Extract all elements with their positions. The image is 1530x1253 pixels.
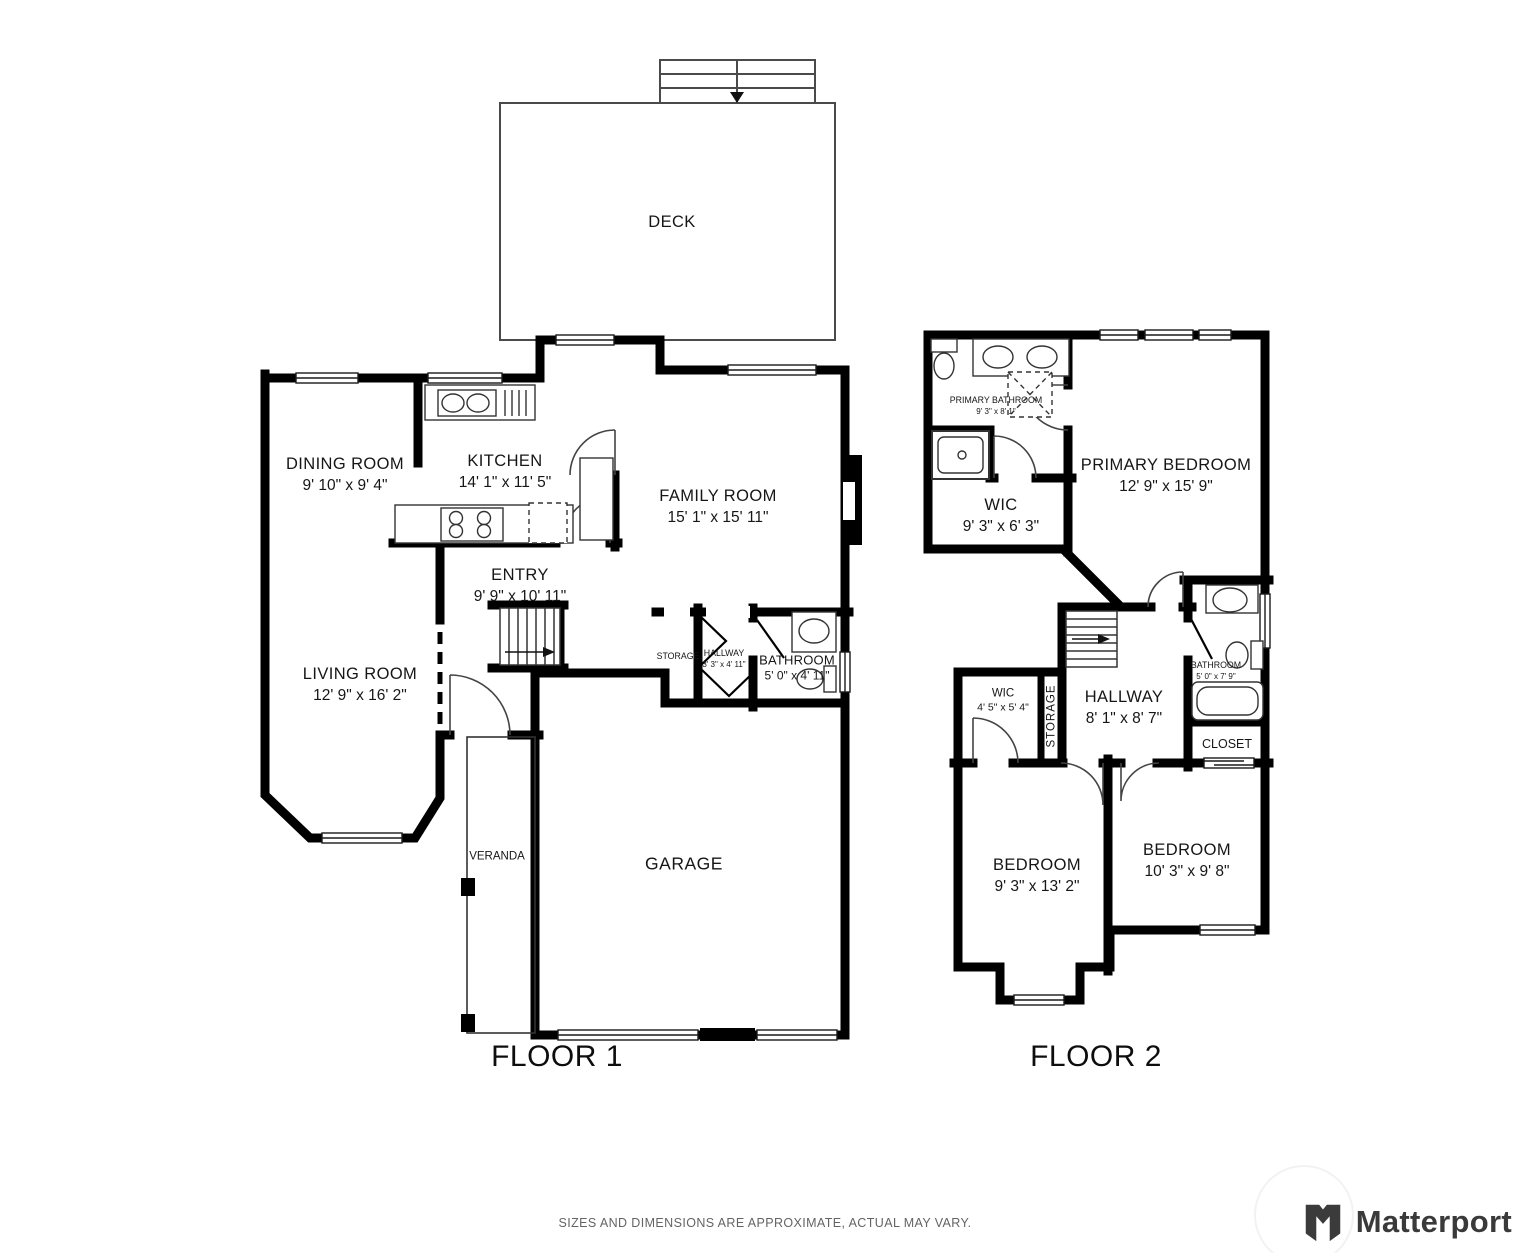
floor2-title: FLOOR 2	[1030, 1040, 1162, 1074]
room-label-living: LIVING ROOM 12' 9" x 16' 2"	[303, 664, 417, 706]
room-label-wic-large: WIC 9' 3" x 6' 3"	[963, 495, 1039, 537]
room-label-hallway-f1: HALLWAY 3' 3" x 4' 11"	[702, 648, 745, 670]
dining-dims: 9' 10" x 9' 4"	[286, 476, 404, 496]
matterport-logo: Matterport	[1300, 1199, 1512, 1245]
family-room-fireplace	[843, 455, 862, 545]
floor2-bathroom-door-leaf	[1190, 617, 1212, 659]
bathroom-f2-dims: 5' 0" x 7' 9"	[1191, 672, 1241, 683]
room-label-bedroom-right: BEDROOM 10' 3" x 9' 8"	[1143, 840, 1231, 882]
storage-f2-name: STORAGE	[1044, 684, 1059, 747]
floor2-bathroom-fixtures	[1192, 585, 1263, 720]
hallway-f2-dims: 8' 1" x 8' 7"	[1085, 709, 1164, 729]
floorplan-drawing	[0, 0, 1530, 1253]
wic-small-name: WIC	[977, 686, 1029, 701]
entry-dims: 9' 9" x 10' 11"	[474, 587, 566, 607]
bedroom-left-dims: 9' 3" x 13' 2"	[993, 877, 1081, 897]
room-label-bathroom-f2: BATHROOM 5' 0" x 7' 9"	[1191, 660, 1241, 682]
room-label-veranda: VERANDA	[469, 849, 525, 864]
wic-small-dims: 4' 5" x 5' 4"	[977, 702, 1029, 716]
room-label-bedroom-left: BEDROOM 9' 3" x 13' 2"	[993, 855, 1081, 897]
hallway-f1-name: HALLWAY	[702, 648, 745, 660]
room-label-primary-bedroom: PRIMARY BEDROOM 12' 9" x 15' 9"	[1081, 455, 1251, 497]
garage-door-post	[700, 1028, 755, 1041]
room-label-entry: ENTRY 9' 9" x 10' 11"	[474, 565, 566, 607]
primary-bedroom-dims: 12' 9" x 15' 9"	[1081, 477, 1251, 497]
room-label-dining: DINING ROOM 9' 10" x 9' 4"	[286, 454, 404, 496]
room-label-wic-small: WIC 4' 5" x 5' 4"	[977, 686, 1029, 715]
floor1-title: FLOOR 1	[491, 1040, 623, 1074]
room-label-storage-f1: STORAGE	[657, 651, 700, 663]
bathroom-f1-name: BATHROOM	[759, 652, 835, 669]
bedroom-left-name: BEDROOM	[993, 855, 1081, 877]
floor2-doors	[973, 385, 1183, 805]
wic-large-dims: 9' 3" x 6' 3"	[963, 517, 1039, 537]
family-dims: 15' 1" x 15' 11"	[659, 508, 776, 528]
room-label-kitchen: KITCHEN 14' 1" x 11' 5"	[459, 451, 551, 493]
floorplan-canvas: DECK DINING ROOM 9' 10" x 9' 4" KITCHEN …	[0, 0, 1530, 1253]
room-label-closet: CLOSET	[1202, 736, 1252, 753]
room-label-family: FAMILY ROOM 15' 1" x 15' 11"	[659, 486, 776, 528]
garage-name: GARAGE	[645, 852, 723, 875]
entry-name: ENTRY	[474, 565, 566, 587]
wic-large-name: WIC	[963, 495, 1039, 517]
bedroom-right-name: BEDROOM	[1143, 840, 1231, 862]
room-label-bathroom-f1: BATHROOM 5' 0" x 4' 11"	[759, 652, 835, 685]
bathroom-f2-name: BATHROOM	[1191, 660, 1241, 672]
room-label-garage: GARAGE	[645, 852, 723, 875]
deck-name: DECK	[648, 212, 695, 234]
living-dims: 12' 9" x 16' 2"	[303, 686, 417, 706]
matterport-wordmark: Matterport	[1356, 1204, 1512, 1240]
room-label-hallway-f2: HALLWAY 8' 1" x 8' 7"	[1085, 687, 1164, 729]
primary-bathroom-name: PRIMARY BATHROOM	[950, 395, 1042, 407]
primary-bedroom-name: PRIMARY BEDROOM	[1081, 455, 1251, 477]
family-name: FAMILY ROOM	[659, 486, 776, 508]
bathroom-f1-dims: 5' 0" x 4' 11"	[759, 669, 835, 685]
deck-stairs-arrow	[730, 92, 744, 103]
veranda-name: VERANDA	[469, 849, 525, 864]
hallway-f2-name: HALLWAY	[1085, 687, 1164, 709]
floor1-stairs	[500, 608, 560, 665]
deck-outline	[500, 60, 835, 340]
storage-f1-name: STORAGE	[657, 651, 700, 663]
floor1-wall-openings	[664, 606, 750, 618]
room-label-deck: DECK	[648, 212, 695, 234]
logo-watermark-circle	[1254, 1165, 1354, 1253]
hallway-f1-dims: 3' 3" x 4' 11"	[702, 660, 745, 671]
kitchen-dims: 14' 1" x 11' 5"	[459, 473, 551, 493]
kitchen-name: KITCHEN	[459, 451, 551, 473]
living-name: LIVING ROOM	[303, 664, 417, 686]
veranda-outline	[461, 737, 535, 1033]
dining-name: DINING ROOM	[286, 454, 404, 476]
room-label-storage-f2: STORAGE	[1044, 684, 1059, 747]
disclaimer-text: SIZES AND DIMENSIONS ARE APPROXIMATE, AC…	[559, 1216, 972, 1230]
bedroom-right-dims: 10' 3" x 9' 8"	[1143, 862, 1231, 882]
primary-bathroom-dims: 9' 3" x 8' 1"	[950, 407, 1042, 418]
closet-name: CLOSET	[1202, 736, 1252, 753]
room-label-primary-bathroom: PRIMARY BATHROOM 9' 3" x 8' 1"	[950, 395, 1042, 417]
